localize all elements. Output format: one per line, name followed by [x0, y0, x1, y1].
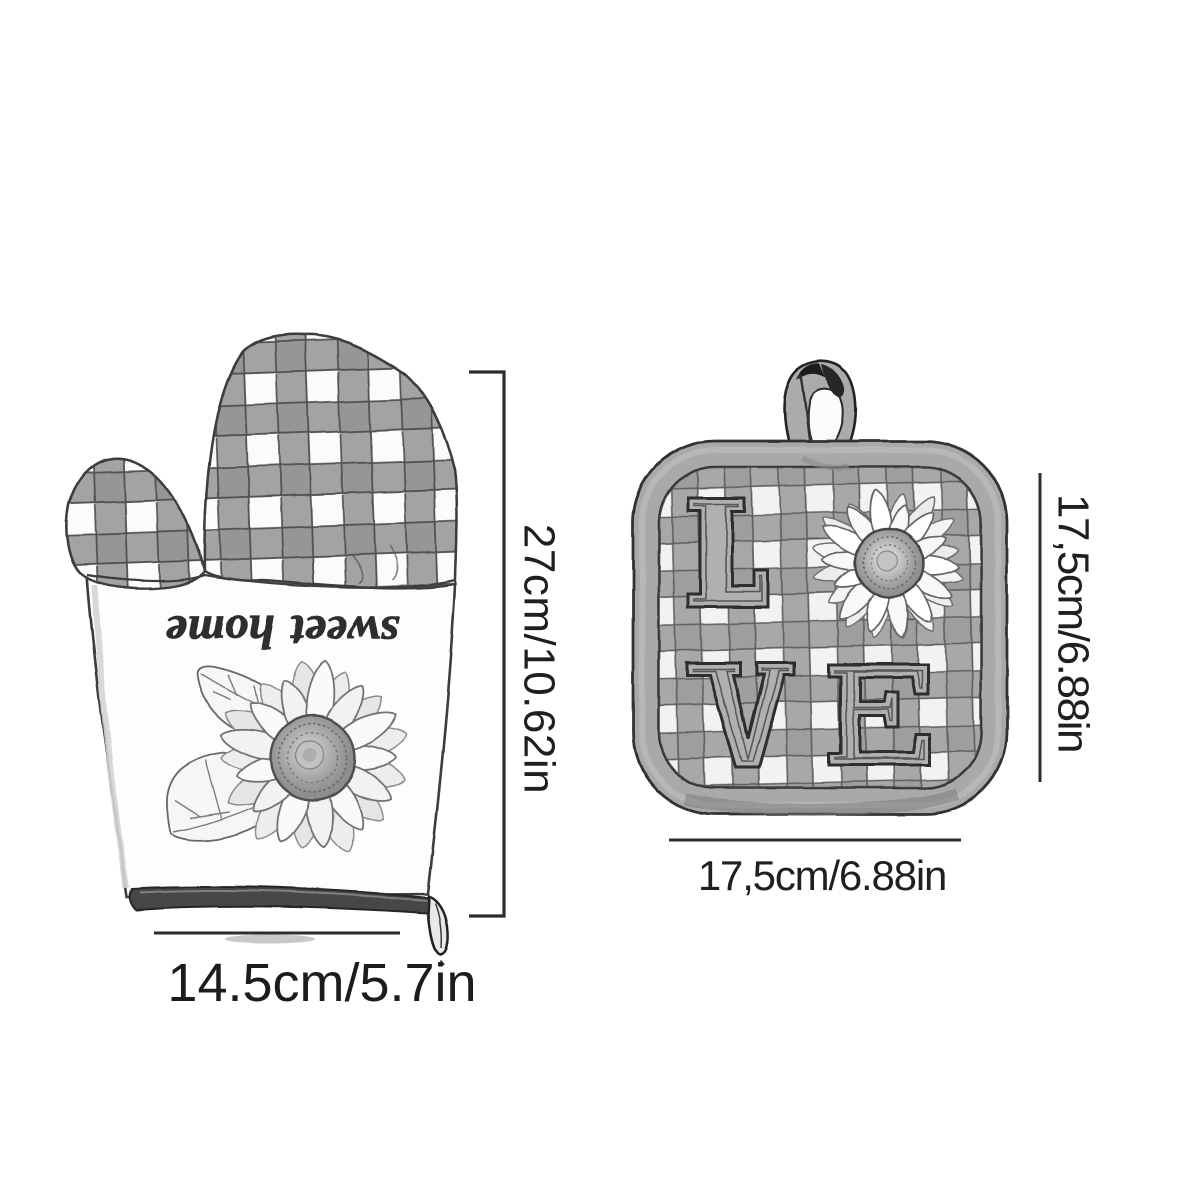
- svg-text:14.5cm/5.7in: 14.5cm/5.7in: [167, 953, 476, 1013]
- svg-text:27cm/10.62in: 27cm/10.62in: [515, 524, 564, 794]
- svg-text:17,5cm/6.88in: 17,5cm/6.88in: [1049, 494, 1098, 752]
- svg-text:17,5cm/6.88in: 17,5cm/6.88in: [698, 852, 946, 899]
- svg-text:sweet home: sweet home: [166, 605, 400, 658]
